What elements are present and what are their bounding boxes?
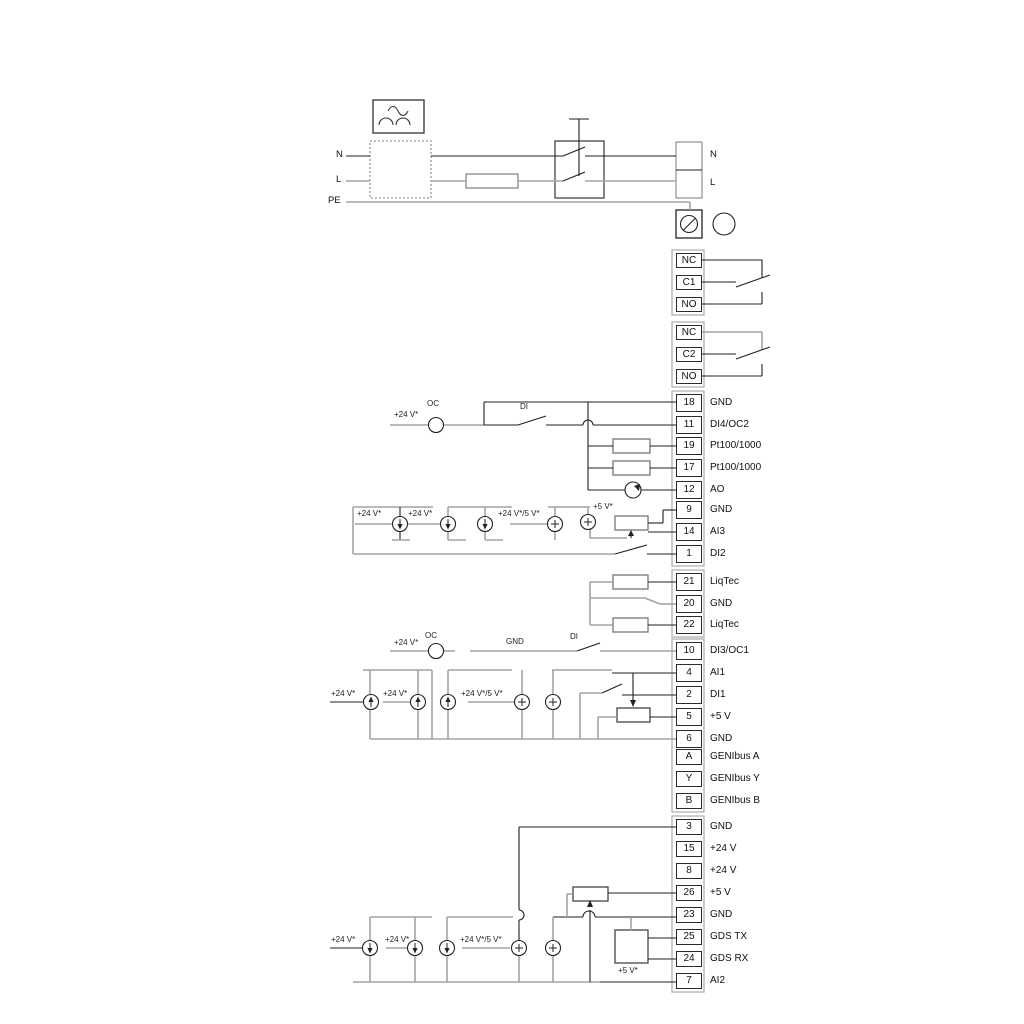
terminal-11-label: DI4/OC2 (710, 419, 749, 430)
relay2-terminal[interactable]: NO (676, 369, 702, 384)
current-source-icon (440, 941, 455, 956)
terminal-3-label: GND (710, 821, 732, 832)
annotation-v24: +24 V* (385, 935, 409, 944)
terminal-21-label: LiqTec (710, 576, 739, 587)
open-collector-icon (429, 644, 444, 659)
terminal-24[interactable]: 24 (676, 951, 702, 967)
screw-terminal-icon (681, 216, 698, 233)
terminal-l-label: L (710, 177, 715, 188)
terminal-9-label: GND (710, 504, 732, 515)
terminal-26-label: +5 V (710, 887, 731, 898)
terminal-23-label: GND (710, 909, 732, 920)
current-source-icon (546, 941, 561, 956)
wiring (330, 100, 770, 992)
terminal-10-label: DI3/OC1 (710, 645, 749, 656)
terminal-22[interactable]: 22 (676, 616, 702, 634)
current-source-icon (546, 695, 561, 710)
annotation-v24v5: +24 V*/5 V* (461, 689, 503, 698)
emc-filter-box (370, 141, 431, 198)
current-source-icon (581, 515, 596, 530)
annotation-gnd: GND (506, 637, 524, 646)
annotation-di: DI (570, 632, 578, 641)
terminal-3[interactable]: 3 (676, 819, 702, 835)
annotation-v24: +24 V* (383, 689, 407, 698)
annotation-oc: OC (425, 631, 437, 640)
terminal-6-label: GND (710, 733, 732, 744)
current-source-icon (548, 517, 563, 532)
annotation-oc: OC (427, 399, 439, 408)
relay1-terminal[interactable]: NO (676, 297, 702, 312)
terminal-2[interactable]: 2 (676, 686, 702, 704)
terminal-20-label: GND (710, 598, 732, 609)
current-source-icon (441, 695, 456, 710)
mains-l-label: L (336, 174, 341, 185)
annotation-v24: +24 V* (331, 689, 355, 698)
terminal-4[interactable]: 4 (676, 664, 702, 682)
resistor-icon (613, 461, 650, 475)
current-source-icon (363, 941, 378, 956)
arrow-head (628, 530, 634, 536)
terminal-10[interactable]: 10 (676, 642, 702, 660)
current-source-icon (393, 517, 408, 532)
current-source-icon (364, 695, 379, 710)
annotation-v5: +5 V* (593, 502, 613, 511)
earth-icon (713, 213, 735, 235)
terminal-6[interactable]: 6 (676, 730, 702, 748)
fuse-icon (466, 174, 518, 188)
terminal-12-label: AO (710, 484, 724, 495)
terminal-A[interactable]: A (676, 749, 702, 765)
terminal-15[interactable]: 15 (676, 841, 702, 857)
terminal-1-label: DI2 (710, 548, 726, 559)
current-source-icon (408, 941, 423, 956)
terminal-17[interactable]: 17 (676, 459, 702, 477)
terminal-11[interactable]: 11 (676, 416, 702, 434)
terminal-7-label: AI2 (710, 975, 725, 986)
terminal-21[interactable]: 21 (676, 573, 702, 591)
terminal-25[interactable]: 25 (676, 929, 702, 945)
mains-pe-label: PE (328, 195, 341, 206)
terminal-12[interactable]: 12 (676, 481, 702, 499)
terminal-24-label: GDS RX (710, 953, 748, 964)
terminal-Y[interactable]: Y (676, 771, 702, 787)
terminal-15-label: +24 V (710, 843, 736, 854)
potentiometer-icon (617, 708, 650, 722)
potentiometer-icon (573, 887, 608, 901)
current-source-icon (441, 517, 456, 532)
relay2-terminal[interactable]: C2 (676, 347, 702, 362)
current-source-icon (512, 941, 527, 956)
terminal-18[interactable]: 18 (676, 394, 702, 412)
terminal-14[interactable]: 14 (676, 523, 702, 541)
open-collector-icon (429, 418, 444, 433)
terminal-25-label: GDS TX (710, 931, 747, 942)
terminal-5[interactable]: 5 (676, 708, 702, 726)
relay1-terminal[interactable]: NC (676, 253, 702, 268)
terminal-5-label: +5 V (710, 711, 731, 722)
sine-filter-icon (373, 100, 424, 133)
terminal-26[interactable]: 26 (676, 885, 702, 901)
annotation-v24: +24 V* (331, 935, 355, 944)
terminal-18-label: GND (710, 397, 732, 408)
terminal-8-label: +24 V (710, 865, 736, 876)
terminal-B-label: GENIbus B (710, 795, 760, 806)
annotation-v24: +24 V* (394, 410, 418, 419)
terminal-23[interactable]: 23 (676, 907, 702, 923)
potentiometer-icon (615, 516, 648, 530)
wiring-diagram: N L PE N L NCC1NONCC2NO18GND11DI4/OC219P… (0, 0, 1024, 1024)
relay1-terminal[interactable]: C1 (676, 275, 702, 290)
current-source-icon (515, 695, 530, 710)
terminal-19[interactable]: 19 (676, 437, 702, 455)
terminal-17-label: Pt100/1000 (710, 462, 761, 473)
annotation-di: DI (520, 402, 528, 411)
terminal-n-label: N (710, 149, 717, 160)
terminal-19-label: Pt100/1000 (710, 440, 761, 451)
terminal-22-label: LiqTec (710, 619, 739, 630)
terminal-4-label: AI1 (710, 667, 725, 678)
annotation-v24: +24 V* (357, 509, 381, 518)
terminal-8[interactable]: 8 (676, 863, 702, 879)
terminal-14-label: AI3 (710, 526, 725, 537)
annotation-v24: +24 V* (408, 509, 432, 518)
resistor-icon (613, 575, 648, 589)
resistor-icon (613, 439, 650, 453)
annotation-v24v5: +24 V*/5 V* (460, 935, 502, 944)
mains-n-label: N (336, 149, 343, 160)
gds-sensor-box (615, 930, 648, 963)
annotation-v5: +5 V* (618, 966, 638, 975)
terminal-7[interactable]: 7 (676, 973, 702, 989)
arrow-head (630, 700, 636, 707)
terminal-9[interactable]: 9 (676, 501, 702, 519)
current-source-icon (411, 695, 426, 710)
relay2-terminal[interactable]: NC (676, 325, 702, 340)
annotation-v24: +24 V* (394, 638, 418, 647)
terminal-B[interactable]: B (676, 793, 702, 809)
terminal-20[interactable]: 20 (676, 595, 702, 613)
terminal-2-label: DI1 (710, 689, 726, 700)
terminal-Y-label: GENIbus Y (710, 773, 760, 784)
resistor-icon (613, 618, 648, 632)
annotation-v24v5: +24 V*/5 V* (498, 509, 540, 518)
terminal-1[interactable]: 1 (676, 545, 702, 563)
terminal-A-label: GENIbus A (710, 751, 759, 762)
current-source-icon (478, 517, 493, 532)
